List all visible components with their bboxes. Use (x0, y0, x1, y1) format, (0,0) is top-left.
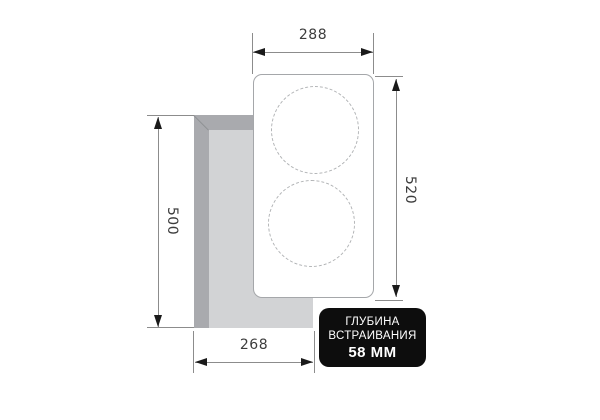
extension-line (147, 115, 194, 116)
badge-text-line1: ГЛУБИНА (345, 315, 399, 330)
arrowhead-right-icon (361, 48, 373, 56)
dimension-left-height: 500 (164, 207, 180, 235)
badge-text-line2: ВСТРАИВАНИЯ (328, 329, 416, 344)
extension-line (375, 76, 403, 77)
dimension-line-right (396, 79, 397, 297)
burner-circle-bottom (268, 180, 355, 267)
dimension-diagram: 288 520 500 268 ГЛУБИНА ВСТРАИВАНИЯ 58 М… (0, 0, 600, 420)
arrowhead-down-icon (154, 315, 162, 327)
dimension-bottom-width: 268 (195, 337, 313, 353)
badge-text-line3: 58 ММ (348, 344, 396, 361)
extension-line (193, 331, 194, 373)
dimension-top-width: 288 (253, 27, 373, 43)
arrowhead-down-icon (392, 285, 400, 297)
arrowhead-left-icon (195, 358, 207, 366)
dimension-right-height: 520 (402, 176, 418, 204)
dimension-line-bottom (195, 362, 313, 363)
extension-line (375, 300, 403, 301)
extension-line (373, 33, 374, 74)
arrowhead-up-icon (392, 79, 400, 91)
burner-circle-top (271, 86, 359, 174)
arrowhead-up-icon (154, 117, 162, 129)
dimension-line-left (158, 117, 159, 327)
arrowhead-right-icon (301, 358, 313, 366)
dimension-line-top (253, 52, 373, 53)
extension-line (314, 331, 315, 373)
arrowhead-left-icon (253, 48, 265, 56)
installation-depth-badge: ГЛУБИНА ВСТРАИВАНИЯ 58 ММ (319, 308, 426, 367)
extension-line (147, 327, 194, 328)
